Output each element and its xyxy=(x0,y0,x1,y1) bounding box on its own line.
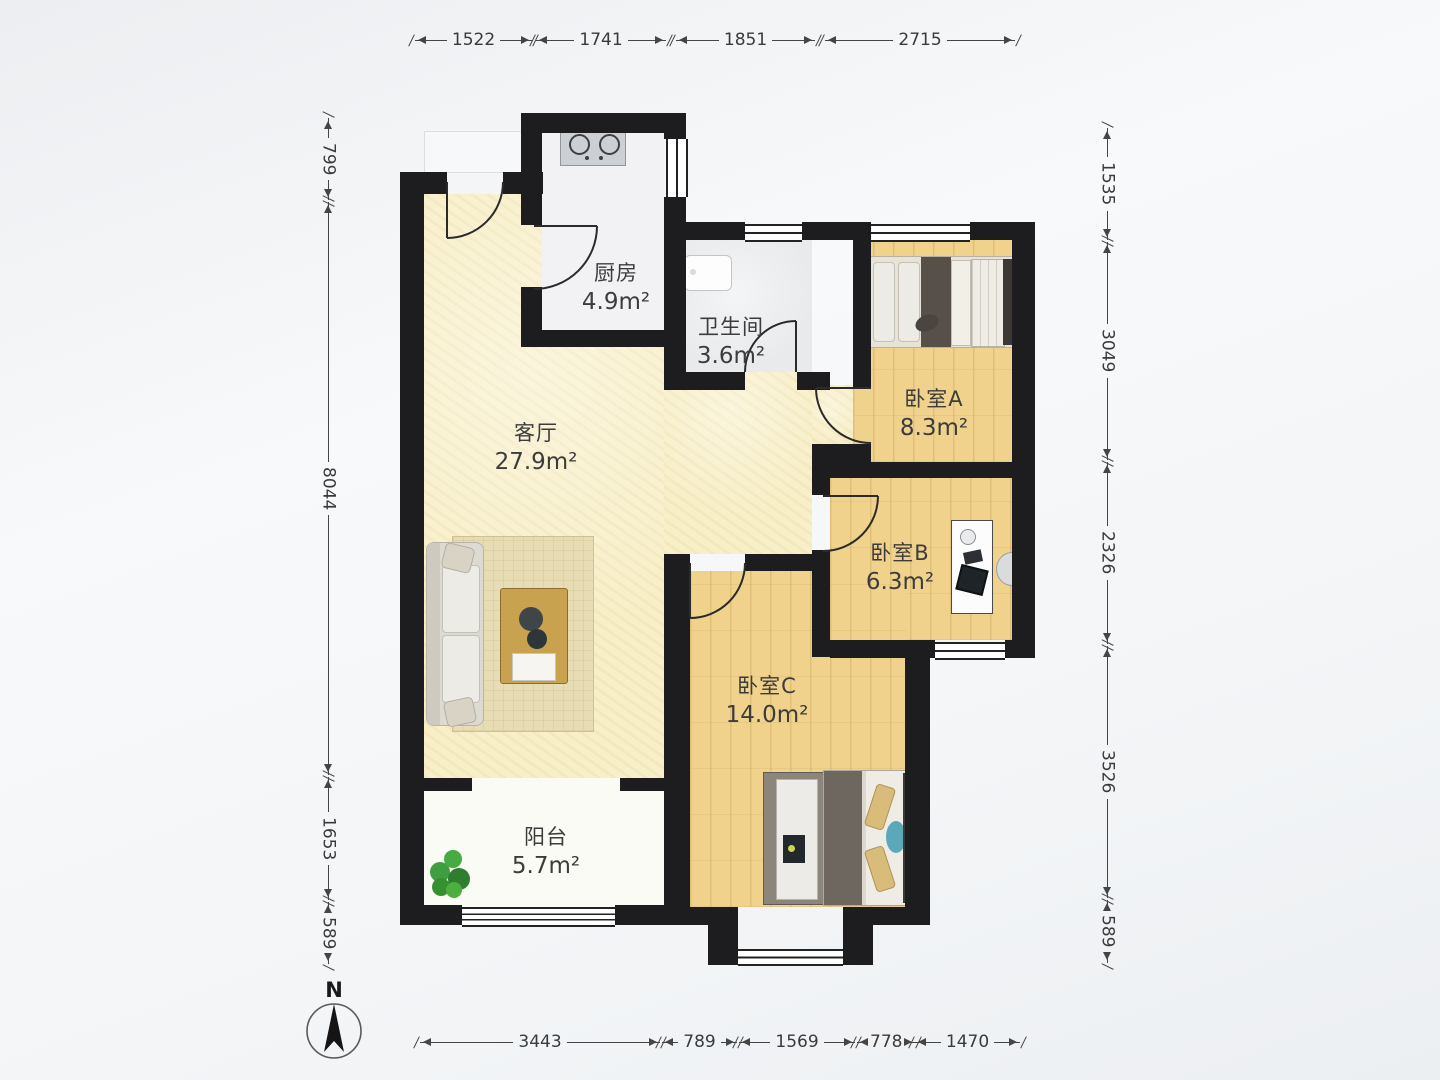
compass-north-label: N xyxy=(325,978,343,1002)
dim-value: 789 xyxy=(678,1034,720,1051)
entry-door xyxy=(447,182,503,238)
room-area: 5.7m² xyxy=(512,853,580,879)
dim-line xyxy=(415,40,447,41)
dim-line xyxy=(824,1042,855,1043)
living-room-label: 客厅 27.9m² xyxy=(495,417,578,475)
balcony-label: 阳台 5.7m² xyxy=(512,821,580,879)
dim-bottom-4: 778 xyxy=(857,1032,913,1052)
dim-line xyxy=(328,515,329,775)
compass-needle-icon xyxy=(324,1004,344,1052)
floorplan-canvas: 厨房 4.9m² 卫生间 3.6m² 客厅 27.9m² 卧室A 8.3m² 卧… xyxy=(0,0,1440,1080)
room-area: 14.0m² xyxy=(726,702,809,728)
dim-right-5: 589 xyxy=(1097,900,1117,963)
dim-line xyxy=(628,40,666,41)
dim-value: 1470 xyxy=(941,1034,994,1051)
bedroom-b-label: 卧室B 6.3m² xyxy=(866,537,934,595)
dim-line xyxy=(994,1042,1020,1043)
dim-value: 589 xyxy=(1099,910,1116,952)
bedroom-a-label: 卧室A 8.3m² xyxy=(900,383,968,441)
dim-line xyxy=(567,1042,660,1043)
dim-value: 3526 xyxy=(1099,745,1116,798)
dim-top-4: 2715 xyxy=(825,30,1015,50)
compass-icon xyxy=(303,1000,365,1062)
dim-left-2: 8044 xyxy=(318,202,338,775)
bedroom-a-door xyxy=(816,388,871,443)
dim-value: 589 xyxy=(320,912,337,954)
dim-line xyxy=(1107,211,1108,240)
bathroom-label: 卫生间 3.6m² xyxy=(697,311,765,369)
dim-top-1: 1522 xyxy=(415,30,532,50)
dim-value: 1741 xyxy=(574,32,627,49)
room-area: 6.3m² xyxy=(866,569,934,595)
dim-left-4: 589 xyxy=(318,902,338,964)
dim-value: 799 xyxy=(320,138,337,180)
dim-right-1: 1535 xyxy=(1097,128,1117,240)
dim-line xyxy=(420,1042,513,1043)
room-name: 卧室B xyxy=(866,537,934,567)
dim-line xyxy=(1107,799,1108,898)
room-name: 客厅 xyxy=(495,417,578,447)
dim-line xyxy=(1107,646,1108,745)
dim-value: 1522 xyxy=(447,32,500,49)
dim-line xyxy=(328,202,329,462)
bedroom-c-door xyxy=(690,563,745,618)
dim-value: 2326 xyxy=(1099,526,1116,579)
dim-line xyxy=(536,40,574,41)
dim-line xyxy=(1107,900,1108,910)
dim-line xyxy=(772,40,815,41)
dim-value: 778 xyxy=(865,1034,907,1051)
bedroom-c-label: 卧室C 14.0m² xyxy=(726,670,809,728)
dim-bottom-1: 3443 xyxy=(420,1032,660,1052)
dim-line xyxy=(328,118,329,138)
dim-value: 1851 xyxy=(719,32,772,49)
room-name: 卧室A xyxy=(900,383,968,413)
dim-line xyxy=(825,40,893,41)
dim-line xyxy=(1107,953,1108,963)
dim-line xyxy=(328,902,329,912)
dim-line xyxy=(857,1042,865,1043)
dim-line xyxy=(662,1042,678,1043)
dim-top-2: 1741 xyxy=(536,30,666,50)
dim-value: 2715 xyxy=(893,32,946,49)
door-swing-arcs xyxy=(0,0,1440,1080)
dim-line xyxy=(1107,580,1108,644)
dim-line xyxy=(1107,128,1108,157)
dim-line xyxy=(915,1042,941,1043)
dim-line xyxy=(947,40,1015,41)
dim-line xyxy=(1107,378,1108,460)
dim-right-4: 3526 xyxy=(1097,646,1117,898)
room-name: 阳台 xyxy=(512,821,580,851)
room-name: 卧室C xyxy=(726,670,809,700)
dim-bottom-3: 1569 xyxy=(739,1032,855,1052)
room-name: 卫生间 xyxy=(697,311,765,341)
dim-left-3: 1653 xyxy=(318,777,338,900)
room-area: 3.6m² xyxy=(697,343,765,369)
dim-value: 1569 xyxy=(770,1034,823,1051)
dim-line xyxy=(739,1042,770,1043)
dim-line xyxy=(328,954,329,964)
dim-right-2: 3049 xyxy=(1097,242,1117,460)
room-area: 8.3m² xyxy=(900,415,968,441)
room-area: 4.9m² xyxy=(582,289,650,315)
room-name: 厨房 xyxy=(582,257,650,287)
dim-line xyxy=(328,777,329,812)
dim-bottom-2: 789 xyxy=(662,1032,737,1052)
dim-value: 1653 xyxy=(320,812,337,865)
dim-right-3: 2326 xyxy=(1097,462,1117,644)
room-area: 27.9m² xyxy=(495,449,578,475)
dim-bottom-5: 1470 xyxy=(915,1032,1020,1052)
dim-line xyxy=(1107,462,1108,526)
dim-line xyxy=(328,865,329,900)
dim-value: 1535 xyxy=(1099,157,1116,210)
dim-value: 3443 xyxy=(513,1034,566,1051)
dim-value: 3049 xyxy=(1099,324,1116,377)
dim-line xyxy=(676,40,719,41)
dim-value: 8044 xyxy=(320,462,337,515)
dim-line xyxy=(500,40,532,41)
dim-top-3: 1851 xyxy=(676,30,815,50)
kitchen-label: 厨房 4.9m² xyxy=(582,257,650,315)
dim-left-1: 799 xyxy=(318,118,338,200)
dim-line xyxy=(1107,242,1108,324)
